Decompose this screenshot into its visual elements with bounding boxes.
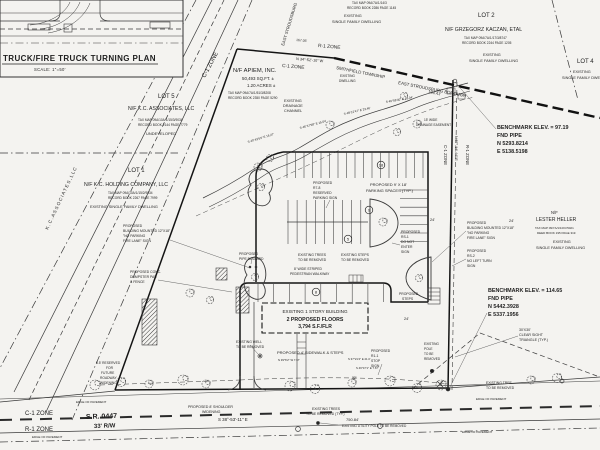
map-label: C-1 ZONE [443,145,448,165]
map-label: EXISTING STEPS [341,253,370,257]
parking-spaces-note: PROPOSED 9' X 18' [370,182,407,187]
map-label: TAX MAP 09A/7A/1/14/3 [352,1,387,5]
pipe-bollard-note: PROPOSED [239,252,259,256]
map-label: BUILDING MOUNTED 12"X18" [123,229,171,233]
map-label: SIGN [467,264,476,268]
map-label: R-1 ZONE [465,145,470,165]
lot1-label: LOT 1 [128,168,145,174]
lot4-label: LOT 4 [577,59,594,65]
road-row: 33' R/W [94,423,116,430]
map-label: N 34°-52'-10" W [296,57,324,63]
map-label: RECORD BOOK 2286 PAGE 1145 [347,6,396,10]
existing-drive-hatch [142,299,157,345]
map-label: EXISTING [340,74,355,78]
kc-associates-boundary-text: K . C . A S S O C I A T E S , L L C [44,166,78,231]
hatched-pads [142,268,249,345]
lot5-label: LOT 5 [158,94,175,100]
utility-pole-icon [317,422,320,425]
benchmark-pipe-2 [446,387,450,391]
map-label: TAX MAP 09A/10A/1/15/2/9034 [108,191,153,195]
map-label: SIGN [401,250,410,254]
bollard-icon [255,266,257,268]
map-label: RESERVED [313,191,332,195]
map-label: RECORD BOOK 2350 PAGE 5290 [228,96,278,100]
building-floors: 2 PROPOSED FLOORS [287,317,344,323]
map-label: N 39°6'2" W 7.67' [278,358,300,362]
map-label: STEPS [402,297,414,301]
inset-title: TRUCK/FIRE TRUCK TURNING PLAN [3,54,156,63]
map-label: 15' WIDE [424,118,437,122]
frontage-bearing: S 38°-53'-11" E [218,417,248,422]
pole-to-remove-icon [430,369,433,372]
zone-label-r1-bottom: R-1 ZONE [25,427,53,433]
map-label: RS-1 [401,235,409,239]
map-label: S 37°21'4" E 21.0' [348,357,371,361]
map-label: DO NOT [401,240,414,244]
map-label: 32' [352,376,357,380]
parking-stall-ticks [258,152,428,302]
map-label: TAX MAP 09A/10A/1/15/3/9034 [138,118,183,122]
site-plan-sheet: TRUCK/FIRE TRUCK TURNING PLAN SCALE: 1"=… [0,0,600,450]
map-label: FND PIPE [497,133,522,139]
map-label: R1-1 [371,354,378,358]
map-label: EDGE OF PAVEMENT [462,430,493,434]
map-label: C-1 ZONE [282,63,305,71]
inset-scale: SCALE: 1"=50' [34,67,66,72]
map-label: RECORD BOOK 2144 PAGE 7779 [138,123,188,127]
pole-removed-note: EXISTING [424,342,439,346]
map-label: DEED BOOK 195 PAGE 319 [537,231,576,235]
zone-label-c1-road: C-1 ZONE [201,51,219,79]
parking-count-value: 18 [379,163,384,168]
map-label: 1.20 ACRES ± [247,83,276,88]
site-plan-drawing: TRUCK/FIRE TRUCK TURNING PLAN SCALE: 1"=… [0,0,600,450]
map-label: WIDENING [100,381,117,385]
subject-owner: N/F APIEM, INC. [233,68,277,74]
map-label: FND PIPE [488,296,513,302]
heller-owner: LESTER HELLER [536,217,577,223]
walkway-note: 8' WIDE STRIPED [294,267,323,271]
parking-count-value: 8 [315,290,318,295]
map-label: 167.05' [296,38,308,43]
proposed-steps-note: PROPOSED [399,292,419,296]
map-label: DWELLING [339,79,356,83]
map-label: PARKING SPACES (TYP.) [366,188,414,193]
map-label: EXISTING TREE [486,381,512,385]
map-label: S 46°47'58" E 15.04' [299,119,327,130]
map-label: NO LEFT TURN [467,259,492,263]
pad-hatch [216,268,227,280]
parking-count-value: 5 [347,237,350,242]
map-label: N/F [551,210,558,215]
map-label: S 40°43'53" E 18.27' [247,132,275,144]
map-label: TAX MAP 09A/7A/1/51/3/8208 [228,91,271,95]
map-label: 50,493 SQ.FT. ± [242,76,275,81]
map-label: BUILDING MOUNTED 12"X18" [467,226,515,230]
map-label: ENTER [401,245,413,249]
map-label: EXISTING [284,99,302,103]
map-label: EXISTING [344,14,362,18]
dumpster-pad [236,287,249,313]
map-label: EXISTING SINGLE FAMILY DWELLING [90,205,158,209]
map-label: E 5138.5198 [497,149,528,155]
map-label: RECORD BOOK 2267 PAGE 7999 [108,196,158,200]
map-label: UNDEVELOPED [146,131,176,136]
map-label: SINGLE FAMILY DWELLING [562,76,600,80]
map-label: S 49°58'40" E 15.04' [385,95,413,104]
map-label: RECORD BOOK 2244 PAGE 1205 [462,41,512,45]
map-label: R7-8 [313,186,320,190]
tree-icon [121,378,126,383]
map-label: PEDESTRIAN WALKWAY [290,272,330,276]
frontage-distance: 750.84' [346,417,359,422]
map-label: EDGE OF PAVEMENT [32,435,63,439]
map-label: 24' [404,317,409,321]
map-label: FOR [106,366,114,370]
map-label: & FENCE [130,280,145,284]
map-label: TO BE REMOVED [236,345,265,349]
map-label: FUTURE [101,371,115,375]
benchmark-2: BENCHMARK ELEV. = 114.65 [488,288,562,294]
map-label: S 46°47'1" E 7.67' [356,366,379,370]
map-label: EXISTING [483,53,501,57]
tree-icon [390,376,396,382]
map-label: DUMPSTER PAD [130,275,157,279]
map-label: EXISTING UTILITY POLE TO BE REMOVED [342,424,407,428]
map-label: EXISTING [573,70,591,74]
map-label: TAX MAP 09A/7A/1/17/3/8747 [464,36,507,40]
map-label: TO BE REMOVED [486,386,515,390]
map-label: PARKING SIGN [313,196,338,200]
trees-layer [90,93,562,394]
map-label: "NO PARKING [467,231,490,235]
stop-sign-note: PROPOSED [371,349,391,353]
map-label: EDGE OF PAVEMENT [76,400,107,404]
lot2-label: LOT 2 [478,13,495,19]
map-label: DRAINAGE EASEMENT [416,123,451,127]
map-label: CLEAR SIGHT [519,333,544,337]
map-label: SINGLE FAMILY DWELLING [469,59,518,63]
map-label: POLE [424,347,433,351]
tree-icon [557,374,562,379]
map-label: R-1 ZONE [318,43,341,51]
map-label: WIDENING [202,410,221,414]
map-label: EXISTING TREES [298,253,327,257]
map-label: "NO PARKING [123,234,146,238]
map-label: FIRE LANE" SIGN [467,236,496,240]
inset-turning-plan [0,0,183,77]
do-not-enter-sign-note: PROPOSED [401,230,421,234]
lot2-owner: N/F GRZEGORZ KACZAN, ETAL [445,27,522,33]
building-label: EXISTING 1 STORY BUILDING [282,309,348,314]
tree-icon [183,375,189,381]
map-label: N 5442.3928 [488,304,519,310]
map-label: ROADWAY [100,376,117,380]
well-note: EXISTING WELL [236,340,262,344]
fire-lane-sign-note-right: PROPOSED [467,221,487,225]
sight-triangle-note: 30'X30' [519,328,531,332]
map-label: DRAINAGE [283,104,303,108]
municipal-boundary-line [334,58,600,118]
building-area: 3,794 S.F./FLR [298,324,332,330]
zone-label-c1-bottom: C-1 ZONE [25,411,53,417]
dumpster-note: PROPOSED CONC. [130,270,161,274]
map-label: CHANNEL [284,109,302,113]
map-label: TRIANGLE (TYP.) [519,338,548,342]
map-label: N 57°-14'-44" E [454,136,458,161]
map-label: 24' [509,219,514,223]
road-name: S.R. 0447 [86,413,117,421]
fire-lane-sign-note-left: PROPOSED [123,224,143,228]
map-label: SINGLE FAMILY DWELLING [332,20,381,24]
map-label: TO BE REMOVED (TYP.) [306,412,345,416]
map-label: FIRE LANE" SIGN [123,239,152,243]
tree-remove-x-icon [437,381,443,387]
map-label: RS-2 [467,254,475,258]
lot5-owner: N/F K.C. ASSOCIATES, LLC [128,106,194,112]
no-left-turn-sign-note: PROPOSED [467,249,487,253]
sidewalk-note: PROPOSED 4' SIDEWALK & STEPS [277,350,344,355]
map-label: TO BE REMOVED [298,258,327,262]
map-label: STOP [371,359,381,363]
manhole-icon [296,427,301,432]
map-label: PIPE BOLLARD [239,257,264,261]
map-label: TAX MAP 09/7A/1/10/C/5021 [535,226,574,230]
map-label: 24' [430,218,435,222]
reserved-parking-sign-note: PROPOSED [313,181,333,185]
tree-icon [290,381,296,387]
shoulder-note: PROPOSED 8' SHOULDER [188,405,233,409]
map-label: EXISTING TREES [312,407,341,411]
map-label: TO BE [424,352,434,356]
lot1-owner: N/F K.C. HOLDING COMPANY, LLC [84,182,168,188]
map-label: N 5293.8214 [497,141,528,147]
map-label: EXISTING [553,240,571,244]
map-label: SINGLE FAMILY DWELLING [536,246,585,250]
map-label: REMOVED [424,357,441,361]
map-label: E 5337.1956 [488,312,519,318]
benchmark-1: BENCHMARK ELEV. = 97.19 [497,125,569,131]
roadway-widening-note: 8.5' RESERVED [96,361,121,365]
map-label: EDGE OF PAVEMENT [476,397,507,401]
tree-icon [441,380,447,386]
steps-symbols [297,275,440,388]
leader-lines [158,82,518,425]
map-label: TO BE REMOVED [341,258,370,262]
